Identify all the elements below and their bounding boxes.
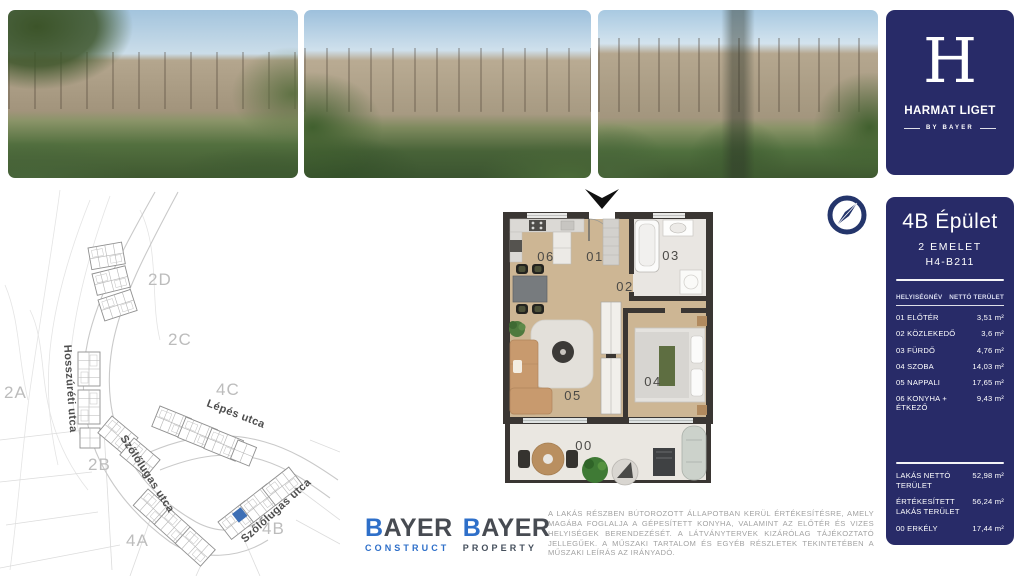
bayer-wordmark: BAYER bbox=[365, 516, 453, 541]
bayer-rest: AYER bbox=[481, 514, 550, 542]
header-underline bbox=[896, 305, 1004, 306]
total-row: LAKÁS NETTÓ TERÜLET 52,98 m² bbox=[896, 471, 1004, 490]
table-row: 05 NAPPALI 17,65 m² bbox=[896, 378, 1004, 387]
table-row: 04 SZOBA 14,03 m² bbox=[896, 362, 1004, 371]
room-label-bedroom: 04 bbox=[644, 374, 661, 389]
building-render-photo-1 bbox=[8, 10, 298, 178]
disclaimer: A LAKÁS RÉSZBEN BÚTOROZOTT ÁLLAPOTBAN KE… bbox=[548, 509, 874, 558]
brand-name: HARMAT LIGET bbox=[886, 104, 1014, 117]
unit-code: H4-B211 bbox=[896, 256, 1004, 268]
tagline-rule-right bbox=[980, 128, 996, 129]
room-label-kitchen: 06 bbox=[537, 249, 554, 264]
bayer-initial: B bbox=[463, 514, 482, 542]
map-area-4a: 4A bbox=[126, 531, 149, 550]
total-value: 56,24 m² bbox=[972, 497, 1004, 516]
row-label: 06 KONYHA + ÉTKEZŐ bbox=[896, 394, 977, 412]
map-area-2d: 2D bbox=[148, 270, 172, 289]
row-label: 01 ELŐTÉR bbox=[896, 313, 939, 322]
total-row: 00 ERKÉLY 17,44 m² bbox=[896, 524, 1004, 533]
logo-bayer-construct: BAYER CONSTRUCT bbox=[365, 516, 453, 553]
bayer-rest: AYER bbox=[384, 514, 453, 542]
row-label: 02 KÖZLEKEDŐ bbox=[896, 329, 955, 338]
brand-panel: H HARMAT LIGET BY BAYER bbox=[886, 10, 1014, 175]
compass-icon bbox=[824, 192, 870, 238]
room-label-living: 05 bbox=[564, 388, 581, 403]
total-label: 00 ERKÉLY bbox=[896, 524, 970, 533]
bayer-wordmark: BAYER bbox=[463, 516, 551, 541]
row-value: 17,65 m² bbox=[972, 378, 1004, 387]
header-room-name: HELYISÉGNÉV bbox=[896, 294, 942, 301]
unit-floor: 2 EMELET bbox=[896, 241, 1004, 253]
row-label: 03 FÜRDŐ bbox=[896, 346, 935, 355]
room-label-hall: 02 bbox=[616, 279, 633, 294]
row-label: 05 NAPPALI bbox=[896, 378, 940, 387]
room-label-balcony: 00 bbox=[575, 438, 592, 453]
table-row: 02 KÖZLEKEDŐ 3,6 m² bbox=[896, 329, 1004, 338]
street-hosszureti-utca: Hosszúréti utca bbox=[61, 344, 79, 433]
tagline-rule-left bbox=[904, 128, 920, 129]
table-row: 01 ELŐTÉR 3,51 m² bbox=[896, 313, 1004, 322]
table-row: 03 FÜRDŐ 4,76 m² bbox=[896, 346, 1004, 355]
total-row: ÉRTÉKESÍTETT LAKÁS TERÜLET 56,24 m² bbox=[896, 497, 1004, 516]
row-value: 3,51 m² bbox=[977, 313, 1004, 322]
map-area-4c: 4C bbox=[216, 380, 240, 399]
total-value: 52,98 m² bbox=[972, 471, 1004, 490]
header-net-area: NETTÓ TERÜLET bbox=[949, 294, 1004, 301]
panel-divider-top bbox=[896, 279, 1004, 281]
brochure-page: H HARMAT LIGET BY BAYER bbox=[0, 0, 1024, 576]
brand-tagline: BY BAYER bbox=[886, 125, 1014, 131]
building-render-photo-3 bbox=[598, 10, 878, 178]
row-label: 04 SZOBA bbox=[896, 362, 934, 371]
brand-monogram: H bbox=[886, 30, 1014, 92]
division-property: PROPERTY bbox=[463, 543, 537, 553]
company-logos: BAYER CONSTRUCT BAYER PROPERTY bbox=[365, 516, 550, 553]
unit-title: 4B Épület bbox=[896, 210, 1004, 234]
row-value: 9,43 m² bbox=[977, 394, 1004, 412]
tagline-text: BY BAYER bbox=[926, 125, 974, 131]
site-map: 2D 2C 2A 4C 2B 4A 4B Hosszúréti utca Lép… bbox=[0, 190, 340, 576]
row-value: 4,76 m² bbox=[977, 346, 1004, 355]
row-value: 14,03 m² bbox=[972, 362, 1004, 371]
total-label: LAKÁS NETTÓ TERÜLET bbox=[896, 471, 970, 490]
total-label: ÉRTÉKESÍTETT LAKÁS TERÜLET bbox=[896, 497, 970, 516]
room-label-bathroom: 03 bbox=[662, 248, 679, 263]
row-value: 3,6 m² bbox=[981, 329, 1004, 338]
logo-bayer-property: BAYER PROPERTY bbox=[463, 516, 551, 553]
bedroom-furniture bbox=[635, 316, 707, 415]
down-arrow-icon bbox=[585, 189, 619, 209]
room-table-header: HELYISÉGNÉV NETTÓ TERÜLET bbox=[896, 294, 1004, 301]
hall-wardrobes bbox=[601, 302, 621, 414]
building-render-photo-2 bbox=[304, 10, 591, 178]
table-row: 06 KONYHA + ÉTKEZŐ 9,43 m² bbox=[896, 394, 1004, 412]
room-label-entry: 01 bbox=[586, 249, 603, 264]
map-area-2a: 2A bbox=[4, 383, 27, 402]
entry-wardrobe bbox=[603, 219, 619, 265]
bayer-initial: B bbox=[365, 514, 384, 542]
map-area-2b: 2B bbox=[88, 455, 111, 474]
floor-plan: 06 01 03 02 05 04 00 bbox=[503, 212, 713, 492]
unit-info-panel: 4B Épület 2 EMELET H4-B211 HELYISÉGNÉV N… bbox=[886, 197, 1014, 545]
map-area-2c: 2C bbox=[168, 330, 192, 349]
total-value: 17,44 m² bbox=[972, 524, 1004, 533]
panel-spacer bbox=[896, 412, 1004, 451]
division-construct: CONSTRUCT bbox=[365, 543, 449, 553]
panel-divider-bottom bbox=[896, 462, 1004, 464]
street-lepes-utca: Lépés utca bbox=[205, 398, 267, 431]
